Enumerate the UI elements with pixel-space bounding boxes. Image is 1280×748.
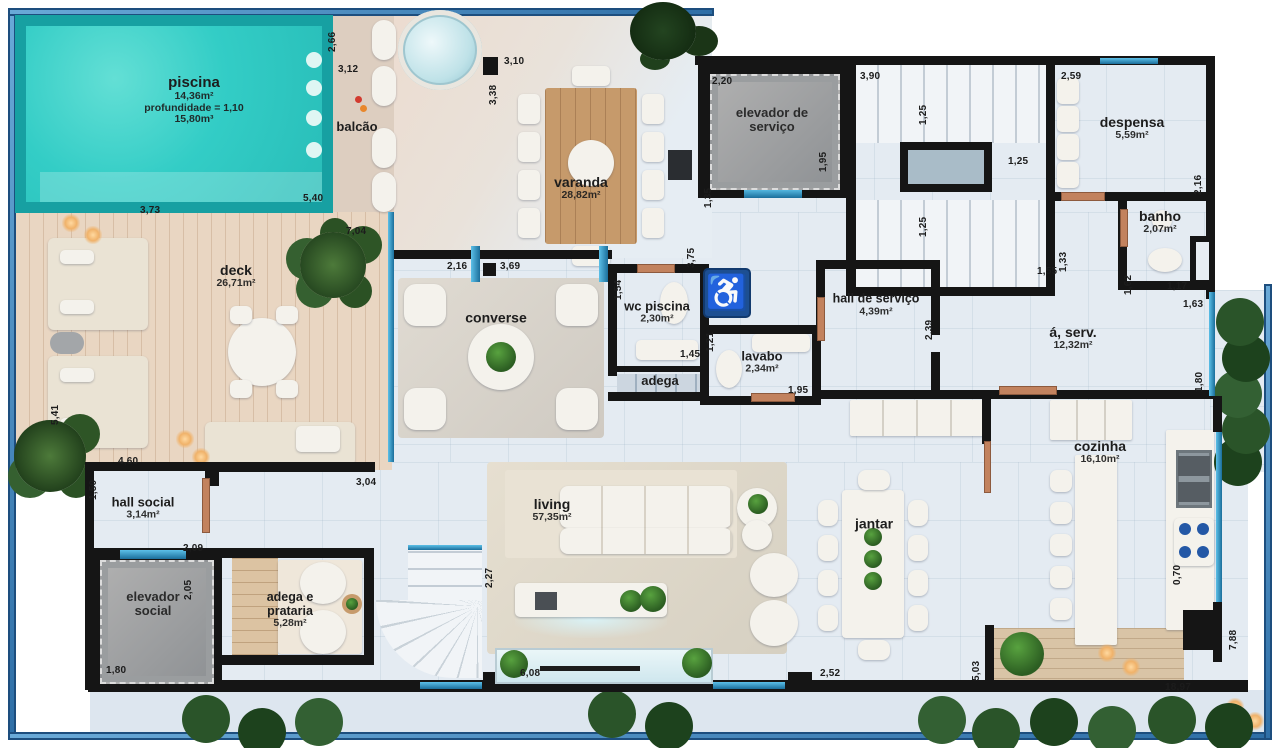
dimension-label: 3,04 (356, 477, 376, 488)
dimension-label: 1,80 (1194, 372, 1205, 392)
glass-wall (1209, 292, 1215, 396)
bench-plant (620, 590, 642, 612)
wall (816, 390, 941, 399)
dimension-label: 2,20 (712, 76, 732, 87)
dimension-label: 2,16 (447, 261, 467, 272)
dimension-label: 1,63 (1183, 299, 1203, 310)
wheelchair-glyph: ♿ (706, 273, 748, 313)
planter-lamp (1122, 658, 1140, 676)
dimension-label: 0,70 (1172, 565, 1183, 585)
round-chair (750, 600, 798, 646)
terrace-lamp (1226, 698, 1244, 716)
dimension-label: 4,60 (118, 456, 138, 467)
wall (85, 462, 217, 471)
dining-chair (858, 640, 890, 660)
armchair (404, 388, 446, 430)
wall (215, 462, 375, 472)
deck-chair (230, 380, 252, 398)
deck-round-table (228, 318, 296, 386)
outdoor-sofa-pillow (296, 426, 340, 452)
stair-edge (408, 545, 482, 550)
armchair (404, 284, 446, 326)
drink-dot (360, 105, 367, 112)
planter-plant (1000, 632, 1044, 676)
wall (222, 548, 374, 558)
dimension-label: 2,09 (183, 543, 203, 554)
wall (364, 548, 374, 665)
room-label-banho: banho 2,07m² (1139, 209, 1181, 235)
dimension-label: 1,55 (1037, 266, 1057, 277)
room-label-adega-prataria: adega e prataria 5,28m² (255, 591, 325, 629)
wall (985, 625, 994, 685)
lounge-chair (372, 20, 396, 60)
pool-jet (306, 110, 322, 126)
frame-bottom (8, 732, 1272, 740)
toilet (1148, 248, 1182, 272)
wall (934, 390, 1215, 399)
sideboard (850, 400, 985, 436)
varanda-chair (518, 132, 540, 162)
wheelchair-accessibility-icon: ♿ (705, 270, 749, 316)
floor-plan: ♿ (0, 0, 1280, 748)
room-label-converse: converse (465, 310, 526, 325)
table-plant (864, 550, 882, 568)
dimension-label: 1,35 (703, 188, 714, 208)
door-hall-servico (818, 298, 824, 340)
varanda-chair (642, 132, 664, 162)
room-label-jantar: jantar (855, 516, 893, 531)
round-chair (750, 553, 798, 597)
wall (608, 366, 709, 372)
glass-wall (388, 212, 394, 462)
dining-chair (908, 570, 928, 596)
varanda-chair (642, 170, 664, 200)
pool-jet (306, 80, 322, 96)
room-label-piscina: piscina 14,36m² profundidade = 1,10 15,8… (144, 75, 243, 125)
dimension-label: 1,50 (88, 480, 99, 500)
dimension-label: 5,03 (971, 661, 982, 681)
burner (1179, 546, 1191, 558)
room-label-deck: deck 26,71m² (216, 263, 255, 289)
bar-stool (1050, 470, 1072, 492)
floor-terrace (90, 690, 1266, 734)
dimension-label: 2,27 (484, 568, 495, 588)
lounge-chair (372, 172, 396, 212)
pool-jet (306, 52, 322, 68)
dimension-label: 2,16 (1193, 175, 1204, 195)
varanda-chair (642, 208, 664, 238)
frame-right (1264, 284, 1272, 740)
stair-straight (408, 548, 482, 602)
dimension-label: 1,62 (1123, 275, 1134, 295)
room-label-area-servico: á, serv. 12,32m² (1049, 325, 1096, 351)
dining-chair (908, 605, 928, 631)
palm-tree (300, 232, 366, 298)
pillow (60, 368, 94, 382)
bar-stool (1050, 598, 1072, 620)
stair-flight-lower (856, 200, 1046, 290)
sink-basin (1178, 482, 1210, 502)
dining-chair (818, 570, 838, 596)
wall (1183, 610, 1216, 650)
wall (1213, 396, 1222, 432)
dining-chair (818, 535, 838, 561)
pillow (60, 300, 94, 314)
av-device (535, 592, 557, 610)
elevator-door (744, 189, 802, 198)
terrace-lamp (1246, 712, 1264, 730)
room-label-balcao: balcão (336, 120, 377, 134)
elevator-door (120, 550, 186, 559)
dimension-label: 1,95 (818, 152, 829, 172)
stair-flight-upper (856, 65, 1046, 143)
dining-chair (908, 535, 928, 561)
dimension-label: 3,90 (860, 71, 880, 82)
tree-top (630, 2, 696, 60)
bath-closet (1190, 236, 1215, 286)
wall (982, 396, 991, 444)
dimension-label: 1,54 (613, 280, 624, 300)
stair-void-glass (900, 142, 992, 192)
dimension-label: 1,80 (106, 665, 126, 676)
room-label-varanda: varanda 28,82m² (554, 175, 608, 201)
glass-wall (713, 682, 785, 689)
bar-stool (1050, 566, 1072, 588)
planter-lamp (1098, 644, 1116, 662)
right-hedge (0, 0, 48, 48)
room-label-despensa: despensa 5,59m² (1100, 115, 1165, 141)
wall (392, 250, 612, 259)
dining-chair (858, 470, 890, 490)
dining-chair (818, 605, 838, 631)
bar-stool (1050, 534, 1072, 556)
dimension-label: 2,66 (327, 32, 338, 52)
dimension-label: 7,04 (346, 226, 366, 237)
dimension-label: 7,88 (1228, 630, 1239, 650)
deck-lamp (176, 430, 194, 448)
dimension-label: 5,40 (303, 193, 323, 204)
varanda-chair (518, 94, 540, 124)
dimension-label: 1,33 (1058, 252, 1069, 272)
burner (1197, 546, 1209, 558)
dimension-label: 1,45 (680, 349, 700, 360)
glass-wall (420, 682, 482, 689)
burner (1197, 523, 1209, 535)
room-label-cozinha: cozinha 16,10m² (1074, 439, 1126, 465)
door-despensa (1062, 193, 1104, 200)
palm-tree (14, 420, 86, 492)
table-plant (864, 572, 882, 590)
room-label-hall-servico: hall de serviço 4,39m² (830, 293, 922, 318)
table-plant (748, 494, 768, 514)
bbq-sink (668, 150, 692, 180)
wall (816, 260, 940, 269)
dimension-label: 1,25 (918, 217, 929, 237)
dimension-label: 18,97 (1165, 682, 1191, 693)
dimension-label: 3,69 (500, 261, 520, 272)
room-label-elevador-social: elevador social (118, 590, 188, 618)
pier (788, 672, 812, 692)
table-plant (346, 598, 358, 610)
deck-lamp (62, 214, 80, 232)
lounge-chair (372, 66, 396, 106)
deck-chair (276, 380, 298, 398)
kitchen-island (1075, 455, 1117, 645)
kitchen-window (1216, 432, 1222, 602)
sofa-seats (560, 528, 732, 554)
armchair (556, 284, 598, 326)
shelf (1057, 106, 1079, 132)
dimension-label: 1,25 (918, 105, 929, 125)
pool-jet (306, 142, 322, 158)
dimension-label: 3,10 (504, 56, 524, 67)
deck-lamp (84, 226, 102, 244)
appliance-row (1050, 400, 1132, 440)
sink-basin (1178, 456, 1210, 476)
sliding-door (471, 246, 480, 282)
deck-chair (230, 306, 252, 324)
hanging-dome-chair (398, 10, 482, 90)
room-label-wc-piscina: wc piscina 2,30m² (624, 299, 690, 324)
varanda-chair (518, 208, 540, 238)
wall (222, 655, 374, 665)
armchair (556, 388, 598, 430)
wall (700, 325, 820, 334)
fire-strip (540, 666, 640, 671)
window (1100, 58, 1158, 64)
deck-chair (276, 306, 298, 324)
wall (608, 392, 709, 401)
dimension-label: 2,39 (924, 320, 935, 340)
dimension-label: 3,73 (140, 205, 160, 216)
pillow (60, 250, 94, 264)
door-area-servico (1000, 387, 1056, 394)
planter-plant (682, 648, 712, 678)
door-wc-piscina (638, 265, 674, 272)
dimension-label: 3,38 (488, 85, 499, 105)
sofa (560, 486, 732, 528)
toilet (716, 350, 742, 388)
bench-plant (640, 586, 666, 612)
side-table (50, 332, 84, 354)
dimension-label: 2,52 (820, 668, 840, 679)
dining-chair (818, 500, 838, 526)
room-label-elevador-servico: elevador de serviço (726, 106, 818, 134)
wall (1213, 602, 1222, 662)
shelf (1057, 134, 1079, 160)
wall (1046, 62, 1055, 296)
dimension-label: 6,08 (520, 668, 540, 679)
sliding-door (599, 246, 608, 282)
dining-chair (908, 500, 928, 526)
side-table (742, 520, 772, 550)
varanda-chair (642, 94, 664, 124)
dimension-label: 1,21 (705, 332, 716, 352)
room-label-adega: adega (641, 374, 679, 388)
dimension-label: 1,17 (1167, 281, 1187, 292)
shelf (1057, 162, 1079, 188)
varanda-chair (518, 170, 540, 200)
column (483, 57, 498, 75)
dimension-label: 1,25 (1008, 156, 1028, 167)
room-label-hall-social: hall social 3,14m² (112, 495, 175, 520)
dimension-label: 3,12 (338, 64, 358, 75)
door-hall-social (203, 479, 209, 532)
dimension-label: 2,59 (1061, 71, 1081, 82)
door-cozinha (985, 442, 990, 492)
drink-dot (355, 96, 362, 103)
room-label-lavabo: lavabo 2,34m² (741, 349, 782, 374)
varanda-chair (572, 66, 610, 86)
pool-bench (40, 172, 322, 202)
table-plant (486, 342, 516, 372)
door-banho (1121, 210, 1127, 246)
dimension-label: 3,75 (686, 248, 697, 268)
bar-stool (1050, 502, 1072, 524)
burner (1179, 523, 1191, 535)
column (483, 263, 496, 276)
dimension-label: 5,41 (50, 405, 61, 425)
room-label-living: living 57,35m² (532, 497, 571, 523)
dimension-label: 1,95 (788, 385, 808, 396)
